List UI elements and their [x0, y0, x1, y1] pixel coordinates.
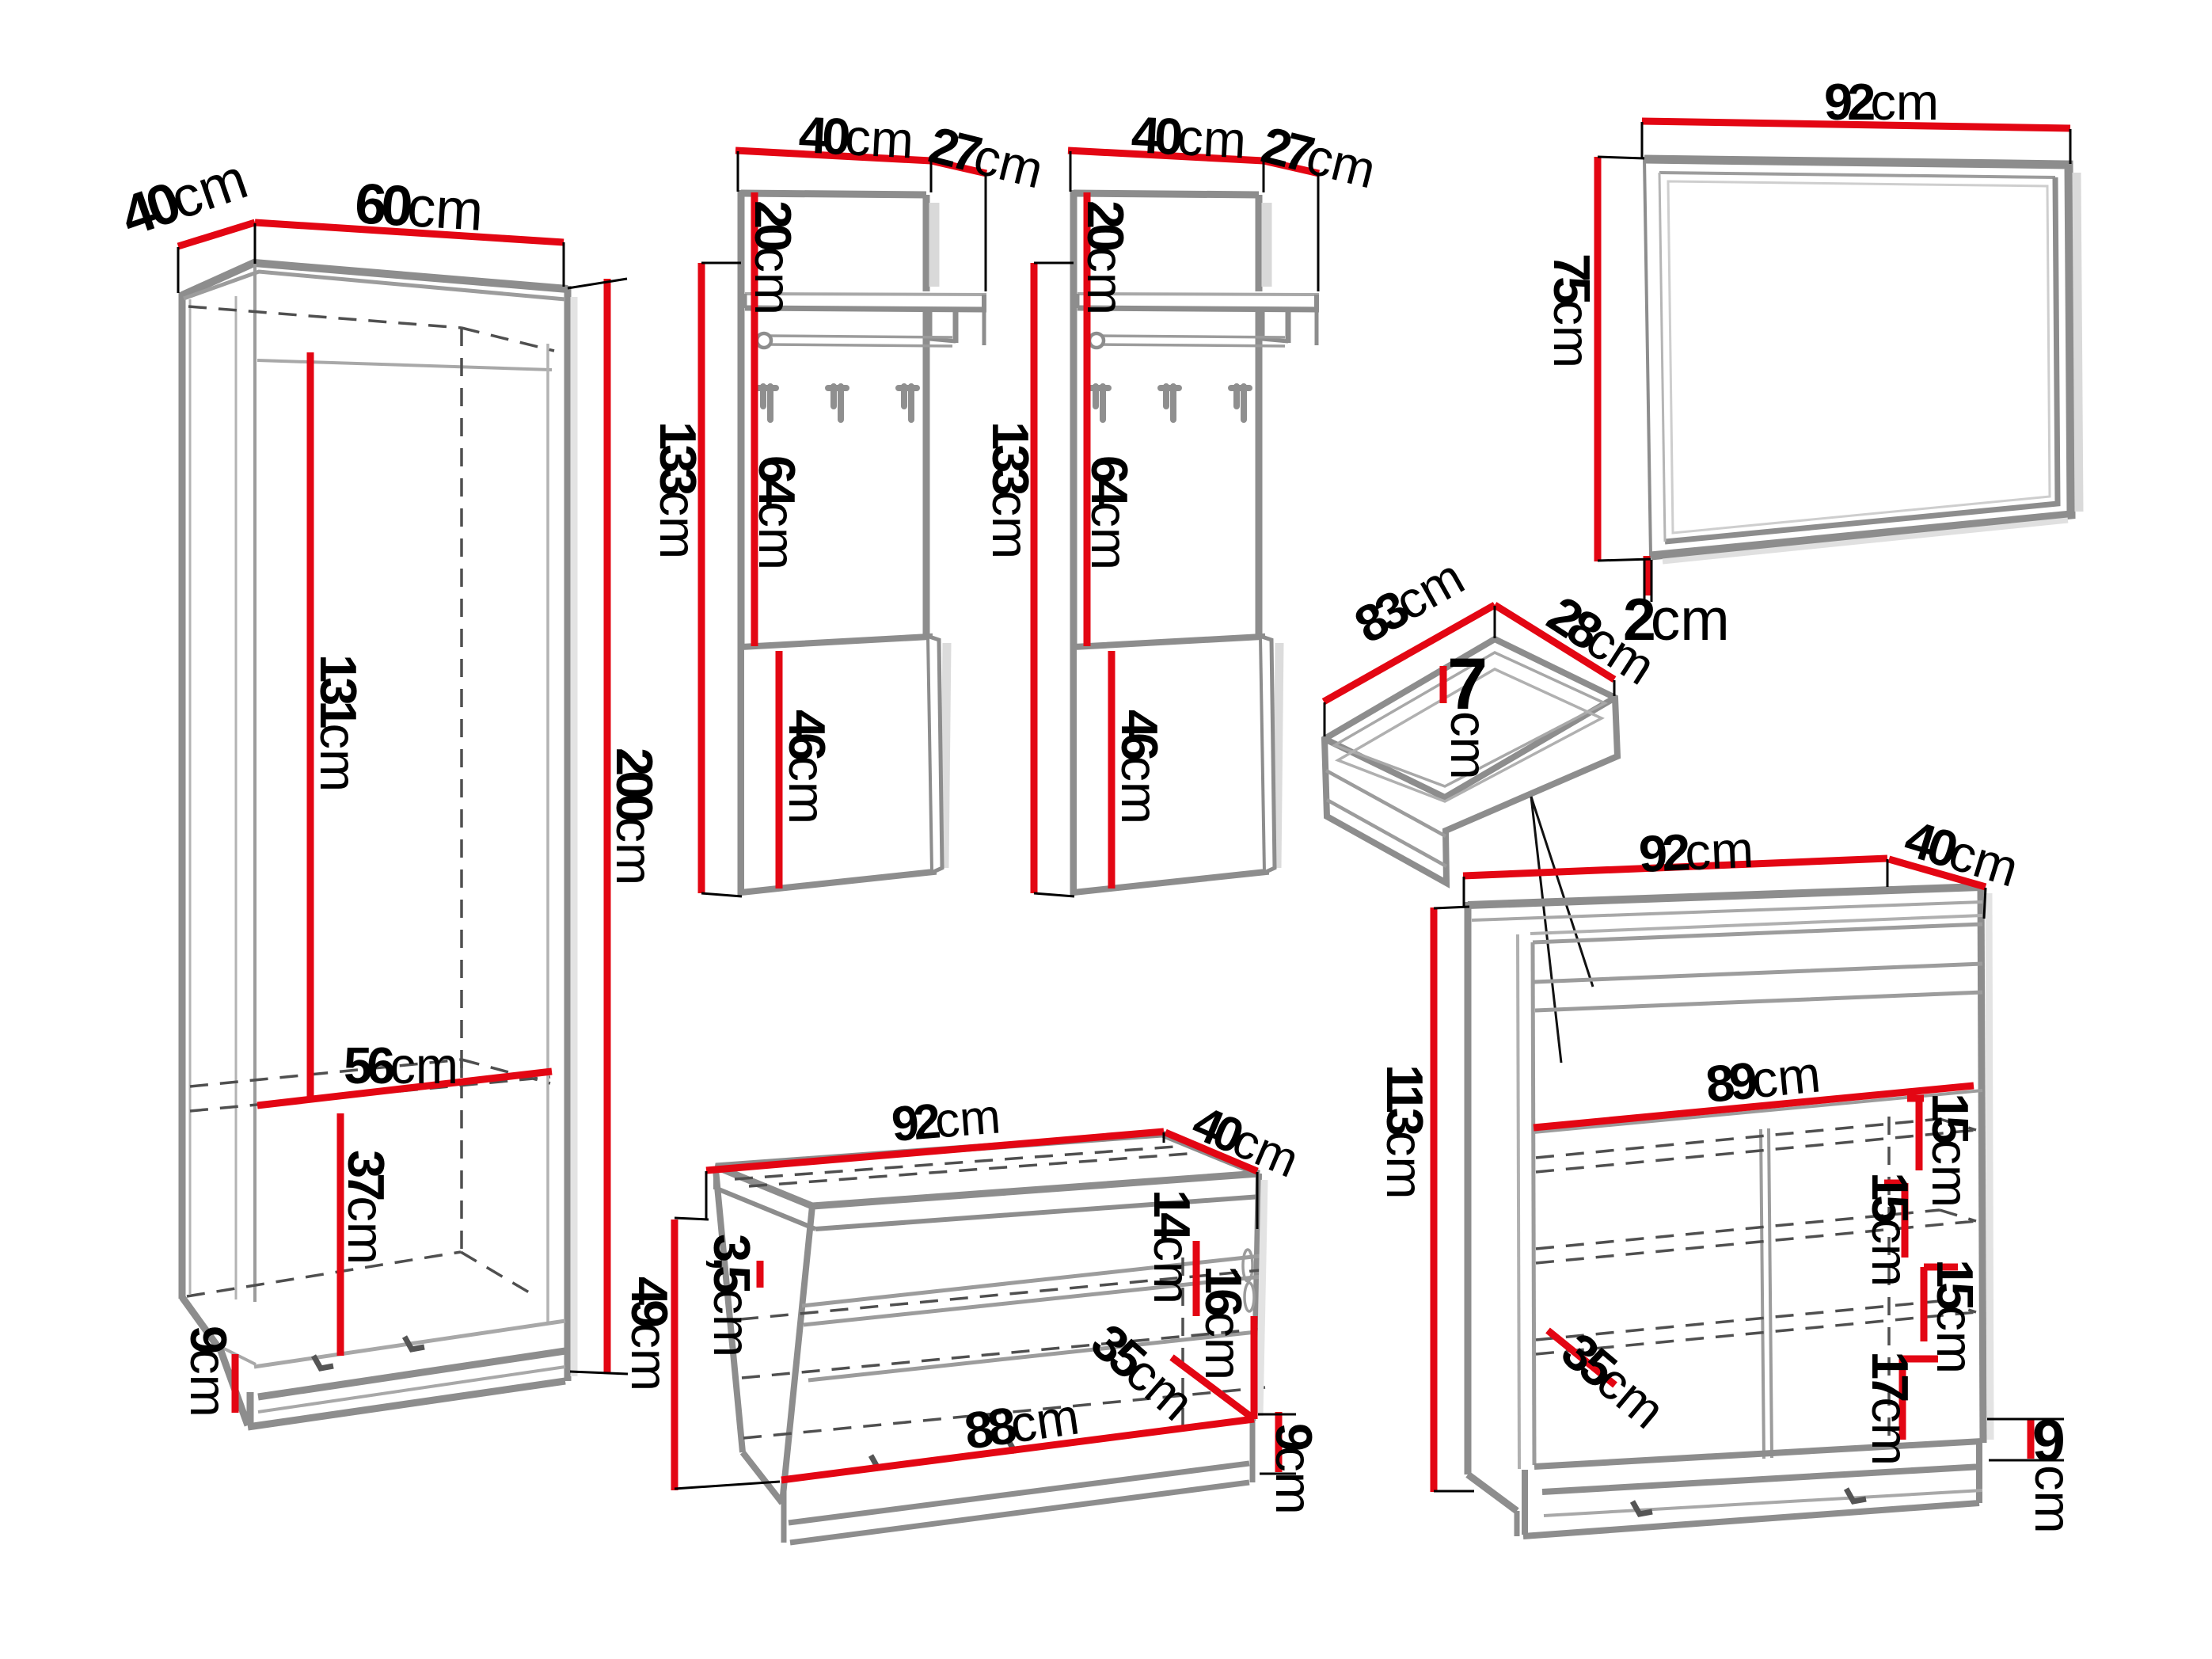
svg-text:9cm: 9cm	[180, 1326, 238, 1417]
svg-text:cm: cm	[1440, 711, 1498, 780]
svg-text:92cm: 92cm	[1637, 820, 1754, 883]
svg-text:cm: cm	[2024, 1465, 2082, 1534]
svg-text:15cm: 15cm	[1921, 1093, 1979, 1208]
svg-text:200cm: 200cm	[606, 748, 663, 885]
svg-text:9: 9	[2032, 1407, 2063, 1474]
svg-text:35cm: 35cm	[1551, 1322, 1676, 1440]
svg-text:15cm: 15cm	[1926, 1259, 1984, 1374]
svg-text:88cm: 88cm	[961, 1387, 1083, 1459]
svg-text:20cm: 20cm	[744, 200, 802, 315]
svg-text:75cm: 75cm	[1543, 253, 1601, 368]
svg-text:27cm: 27cm	[924, 116, 1049, 200]
svg-text:3,5cm: 3,5cm	[703, 1234, 761, 1357]
svg-text:113cm: 113cm	[1376, 1064, 1434, 1200]
svg-text:37cm: 37cm	[337, 1150, 395, 1265]
svg-text:15cm: 15cm	[1861, 1172, 1919, 1287]
svg-text:133cm: 133cm	[649, 421, 707, 559]
svg-text:16cm: 16cm	[1195, 1265, 1252, 1380]
svg-text:14cm: 14cm	[1143, 1189, 1201, 1304]
svg-text:17cm: 17cm	[1861, 1351, 1919, 1466]
svg-text:92cm: 92cm	[890, 1089, 1003, 1152]
svg-text:60cm: 60cm	[353, 172, 485, 243]
svg-text:49cm: 49cm	[621, 1277, 678, 1391]
svg-text:56cm: 56cm	[344, 1037, 458, 1094]
svg-text:35cm: 35cm	[1081, 1312, 1205, 1431]
svg-text:131cm: 131cm	[310, 654, 367, 792]
svg-text:64cm: 64cm	[748, 455, 806, 570]
svg-text:89cm: 89cm	[1703, 1044, 1822, 1113]
svg-text:9cm: 9cm	[1265, 1423, 1323, 1515]
svg-text:40cm: 40cm	[113, 147, 255, 249]
svg-text:46cm: 46cm	[778, 710, 836, 824]
svg-text:83cm: 83cm	[1345, 547, 1473, 654]
svg-text:92cm: 92cm	[1824, 73, 1939, 131]
svg-text:40cm: 40cm	[797, 105, 915, 169]
